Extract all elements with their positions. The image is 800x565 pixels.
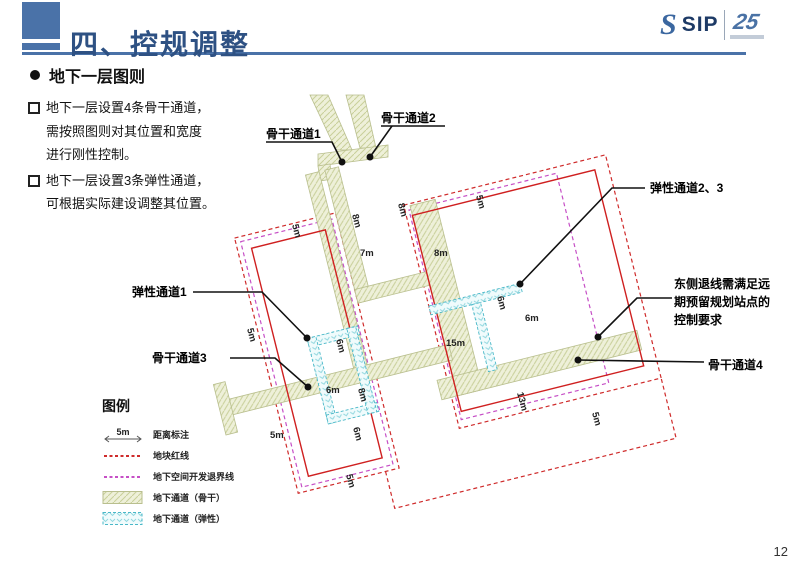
logo-caption-bar xyxy=(730,35,764,39)
dimension-label: 6m xyxy=(494,295,508,311)
legend-item-trunk: 地下通道（骨干） xyxy=(102,487,234,508)
callout-flex1: 弹性通道1 xyxy=(132,284,187,299)
section-bullet-icon xyxy=(30,70,40,80)
legend-item-flex: 地下通道（弹性） xyxy=(102,508,234,529)
dimension-label: 6m xyxy=(525,313,539,324)
section-title: 地下一层图则 xyxy=(30,63,145,87)
logo-divider xyxy=(724,10,725,40)
dimension-label: 13m xyxy=(514,391,530,412)
dimension-label: 5m xyxy=(244,327,258,343)
callout-east-note: 东侧退线需满足远 xyxy=(674,276,770,291)
callout-trunk2: 骨干通道2 xyxy=(381,110,436,125)
callout-east-note: 期预留规划站点的 xyxy=(674,294,770,309)
red-dashed-line-icon xyxy=(102,451,144,461)
flex-corridor-swatch-icon xyxy=(102,511,144,526)
dimension-label: 8m xyxy=(395,202,409,218)
page-number: 12 xyxy=(774,544,788,559)
callout-flex23: 弹性通道2、3 xyxy=(650,180,724,195)
top-corridor-stubs xyxy=(310,95,388,181)
dimension-label: 5m xyxy=(289,223,303,239)
dimension-label: 15m xyxy=(446,338,465,349)
sip-swoosh-icon: S xyxy=(660,10,677,40)
legend-title: 图例 xyxy=(102,396,234,416)
dimension-label: 6m xyxy=(326,385,340,396)
magenta-dashed-line-icon xyxy=(102,472,144,482)
trunk-corridor-swatch-icon xyxy=(102,490,144,505)
slide: 四、控规调整 S SIP 25 地下一层图则 地下一层设置4条骨干通道， 需按照… xyxy=(0,0,800,565)
callout-east-note: 控制要求 xyxy=(674,312,723,327)
dimension-label: 5m xyxy=(473,194,487,210)
legend-item-setback: 地下空间开发退界线 xyxy=(102,466,234,487)
distance-symbol-icon: 5m xyxy=(102,426,144,444)
sip-logo: S SIP 25 xyxy=(660,10,764,40)
callout-trunk1: 骨干通道1 xyxy=(266,126,321,141)
dimension-label: 7m xyxy=(360,248,374,259)
anniversary-badge: 25 xyxy=(730,11,764,39)
sip-logo-text: SIP xyxy=(682,13,719,37)
dimension-label: 5m xyxy=(270,430,284,441)
header-accent-bar xyxy=(22,43,60,50)
dimension-label: 5m xyxy=(343,473,357,489)
legend: 图例 5m 距离标注 地块红线 地下空间开发退界线 地下通道（骨 xyxy=(102,396,234,529)
callout-trunk4: 骨干通道4 xyxy=(708,357,763,372)
page-title: 四、控规调整 xyxy=(70,23,250,63)
legend-item-redline: 地块红线 xyxy=(102,445,234,466)
dimension-label: 6m xyxy=(350,426,364,442)
dimension-label: 6m xyxy=(333,338,347,354)
dimension-label: 8m xyxy=(355,387,369,403)
dimension-label: 8m xyxy=(434,248,448,259)
legend-item-distance: 5m 距离标注 xyxy=(102,424,234,445)
dimension-label: 5m xyxy=(589,411,603,427)
trunk-corridors xyxy=(170,106,642,452)
legend-distance-value: 5m xyxy=(116,427,129,437)
header-accent-square xyxy=(22,2,60,39)
callout-trunk3: 骨干通道3 xyxy=(152,350,207,365)
